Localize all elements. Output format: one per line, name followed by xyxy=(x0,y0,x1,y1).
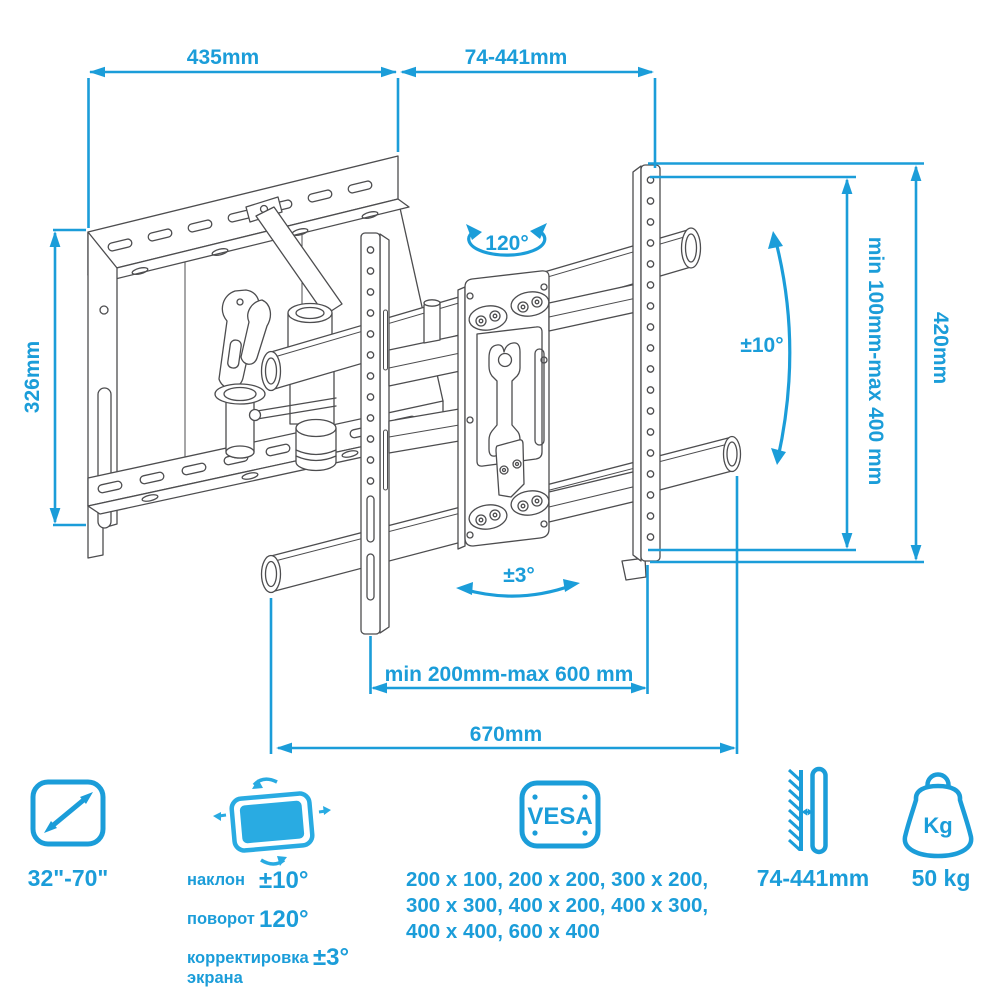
wall-hatch-marks xyxy=(789,770,800,850)
mount-drawing xyxy=(88,156,741,634)
tv-adapter-plate xyxy=(458,271,550,549)
right-vesa-rail xyxy=(622,165,660,580)
dim-rail-height-label: 420mm xyxy=(929,312,952,384)
dim-swivel-arc: 120° xyxy=(466,223,547,255)
swivel-value: 120° xyxy=(259,906,309,933)
dim-level-adjust-label: ±3° xyxy=(503,564,535,587)
vesa-badge-text: VESA xyxy=(527,803,592,830)
tilt-value: ±10° xyxy=(259,867,308,894)
screen-size-caption: 32"-70" xyxy=(28,865,109,891)
dim-top-width-label: 435mm xyxy=(187,46,259,69)
weight-badge-text: Kg xyxy=(923,813,952,838)
dim-tilt-arc: ±10° xyxy=(740,231,789,465)
weight-icon: Kg xyxy=(905,775,971,857)
dim-rail-height: 420mm xyxy=(648,164,952,563)
dim-plate-height-label: 326mm xyxy=(21,341,44,413)
dim-level-adjust-arc: ±3° xyxy=(456,564,580,596)
dim-plate-height: 326mm xyxy=(21,230,86,525)
wall-distance-icon xyxy=(789,769,826,852)
vesa-icon: VESA xyxy=(522,783,598,846)
vesa-sizes-line3: 400 x 400, 600 x 400 xyxy=(406,920,600,943)
dim-tilt-label: ±10° xyxy=(740,334,783,357)
wall-distance-caption: 74-441mm xyxy=(757,865,870,891)
dim-arm-extension: 74-441mm xyxy=(400,46,654,77)
dim-vesa-horizontal-range-label: min 200mm-max 600 mm xyxy=(385,663,634,686)
diagram-canvas: 435mm 74-441mm 326mm 420mm min 100mm-max… xyxy=(0,0,1000,1000)
dim-total-width-label: 670mm xyxy=(470,723,542,746)
adjust-label-line1: корректировка xyxy=(187,949,309,967)
left-vesa-rail xyxy=(361,233,389,634)
vesa-sizes-line1: 200 x 100, 200 x 200, 300 x 200, xyxy=(406,868,708,891)
swivel-label: поворот xyxy=(187,910,255,928)
weight-caption: 50 kg xyxy=(912,865,971,891)
dim-vesa-vertical-range-label: min 100mm-max 400 mm xyxy=(864,237,887,486)
tv-motion-icon xyxy=(213,779,331,866)
dim-arm-extension-label: 74-441mm xyxy=(465,46,568,69)
adjust-label-line2: экрана xyxy=(187,969,244,987)
legend-row: 32"-70" наклон ±10° поворот 120° коррект… xyxy=(28,769,971,987)
vesa-sizes-line2: 300 x 300, 400 x 200, 400 x 300, xyxy=(406,894,708,917)
tilt-label: наклон xyxy=(187,871,245,889)
adjust-value: ±3° xyxy=(313,944,349,971)
mount-dimension-diagram: 435mm 74-441mm 326mm 420mm min 100mm-max… xyxy=(0,0,1000,1000)
screen-size-icon xyxy=(33,782,103,844)
dim-swivel-label: 120° xyxy=(485,232,528,255)
